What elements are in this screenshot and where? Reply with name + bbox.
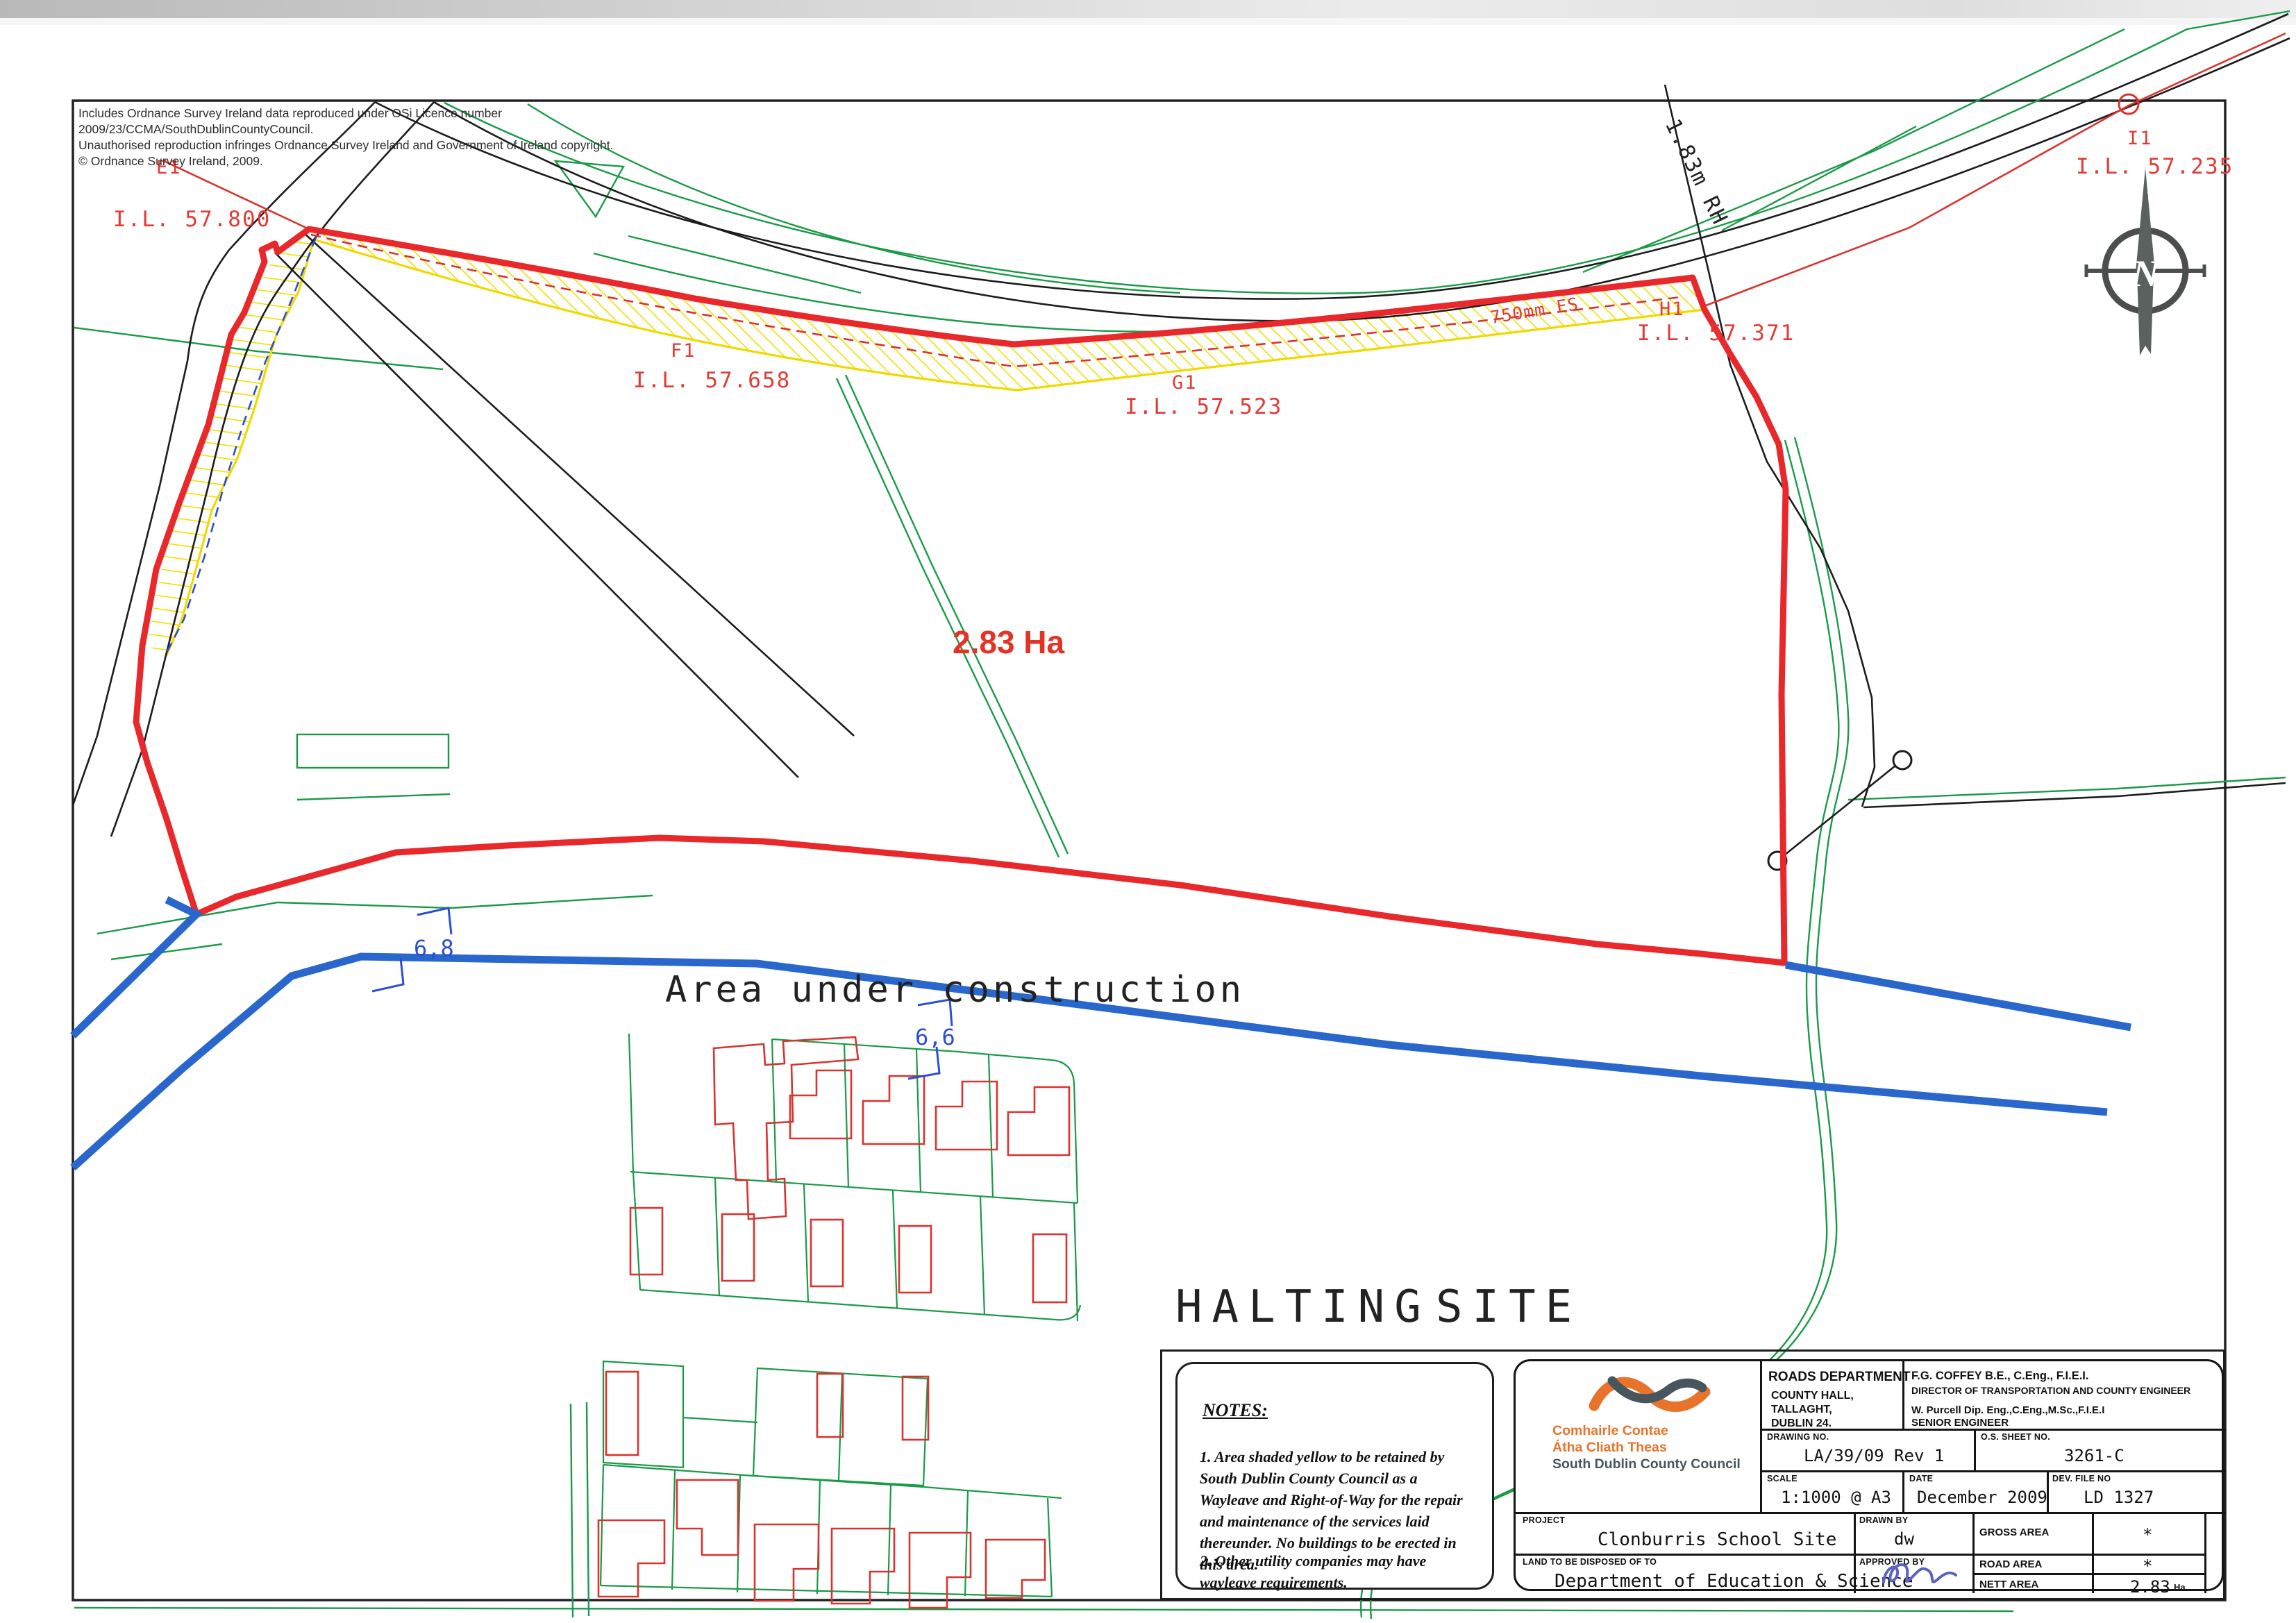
north-letter: N	[2131, 253, 2161, 294]
label-f1: F1	[671, 340, 696, 362]
label-il57800: I.L. 57.800	[113, 207, 271, 232]
engineer2-title: SENIOR ENGINEER	[1911, 1417, 2009, 1429]
project-value: Clonburris School Site	[1598, 1529, 1836, 1550]
dev-file-label: DEV. FILE NO	[2052, 1474, 2111, 1483]
gross-area-value: *	[2143, 1525, 2152, 1545]
tb-line	[1902, 1470, 1904, 1512]
construction-area-blue-lines	[73, 900, 2131, 1168]
nett-area-label: NETT AREA	[1979, 1579, 2038, 1590]
os-copyright-text: Includes Ordnance Survey Ireland data re…	[78, 106, 717, 169]
scale-value: 1:1000 @ A3	[1781, 1488, 1891, 1507]
label-il57371: I.L. 57.371	[1637, 321, 1795, 346]
label-il57658: I.L. 57.658	[633, 368, 791, 393]
date-value: December 2009	[1917, 1488, 2047, 1507]
nett-area-value: 2.83	[2130, 1577, 2170, 1597]
estate-house-outlines	[598, 1037, 1069, 1608]
tb-line	[1760, 1470, 2226, 1472]
drawn-by-label: DRAWN BY	[1859, 1515, 1908, 1525]
logo-line1: Comhairle Contae	[1552, 1422, 1668, 1439]
tb-line	[2204, 1512, 2206, 1593]
tb-line	[1516, 1554, 2204, 1556]
area-under-construction-label: Area under construction	[665, 969, 1245, 1011]
halting-site-word2: SITE	[1436, 1281, 1582, 1333]
label-il57235: I.L. 57.235	[2076, 154, 2234, 179]
project-label: PROJECT	[1523, 1515, 1565, 1525]
nett-area-unit: Ha	[2174, 1582, 2186, 1592]
title-block: Comhairle Contae Átha Cliath Theas South…	[1514, 1359, 2224, 1591]
drawn-by-value: dw	[1894, 1529, 1914, 1549]
tb-line	[1974, 1429, 1976, 1470]
scanned-site-plan-sheet: { "colors":{ "boundary_red":"#e8282b","t…	[0, 0, 2296, 1623]
label-i1: I1	[2127, 128, 2153, 149]
engineer2-name: W. Purcell Dip. Eng.,C.Eng.,M.Sc.,F.I.E.…	[1911, 1404, 2104, 1416]
site-area-label: 2.83 Ha	[953, 624, 1065, 660]
approved-signature	[1878, 1557, 1961, 1593]
label-il57523: I.L. 57.523	[1125, 394, 1282, 419]
halting-site-word1: HALTING	[1175, 1281, 1431, 1333]
dim-6-8: 6,8	[414, 935, 454, 961]
scale-label: SCALE	[1767, 1474, 1798, 1483]
manhole-circle-1	[1893, 751, 1911, 769]
gross-area-label: GROSS AREA	[1979, 1527, 2049, 1538]
wayleave-yellow-band	[147, 229, 1704, 655]
date-label: DATE	[1909, 1474, 1933, 1483]
department-address: COUNTY HALL, TALLAGHT, DUBLIN 24.	[1771, 1389, 1854, 1431]
drawing-no-value: LA/39/09 Rev 1	[1804, 1446, 1944, 1465]
label-h1: H1	[1659, 298, 1685, 320]
logo-line3: South Dublin County Council	[1552, 1456, 1741, 1472]
dev-file-value: LD 1327	[2084, 1488, 2154, 1507]
tb-line	[1972, 1573, 2204, 1575]
label-183m-RH: 1.83m RH	[1660, 115, 1733, 229]
site-boundary-red	[136, 229, 1786, 963]
logo-line2: Átha Cliath Theas	[1552, 1439, 1667, 1456]
road-area-value: *	[2143, 1556, 2152, 1576]
sdcc-logo-icon	[1589, 1371, 1713, 1421]
north-arrow-icon: N	[2086, 168, 2204, 355]
department-name: ROADS DEPARTMENT	[1768, 1370, 1910, 1385]
engineer1-name: F.G. COFFEY B.E., C.Eng., F.I.E.I.	[1911, 1370, 2088, 1383]
tb-line	[2092, 1512, 2094, 1593]
tb-line	[1516, 1512, 2226, 1514]
engineer1-title: DIRECTOR OF TRANSPORTATION AND COUNTY EN…	[1911, 1385, 2190, 1396]
drawing-no-label: DRAWING NO.	[1767, 1432, 1829, 1442]
tb-line	[1760, 1361, 1762, 1512]
os-sheet-value: 3261-C	[2064, 1446, 2125, 1465]
land-disposed-value: Department of Education & Science	[1555, 1571, 1913, 1592]
road-area-label: ROAD AREA	[1979, 1558, 2042, 1570]
land-disposed-label: LAND TO BE DISPOSED OF TO	[1523, 1557, 1657, 1567]
label-g1: G1	[1172, 372, 1198, 394]
dim-6-6: 6,6	[915, 1024, 955, 1050]
tb-line	[1972, 1512, 1975, 1593]
os-sheet-label: O.S. SHEET NO.	[1981, 1432, 2050, 1442]
